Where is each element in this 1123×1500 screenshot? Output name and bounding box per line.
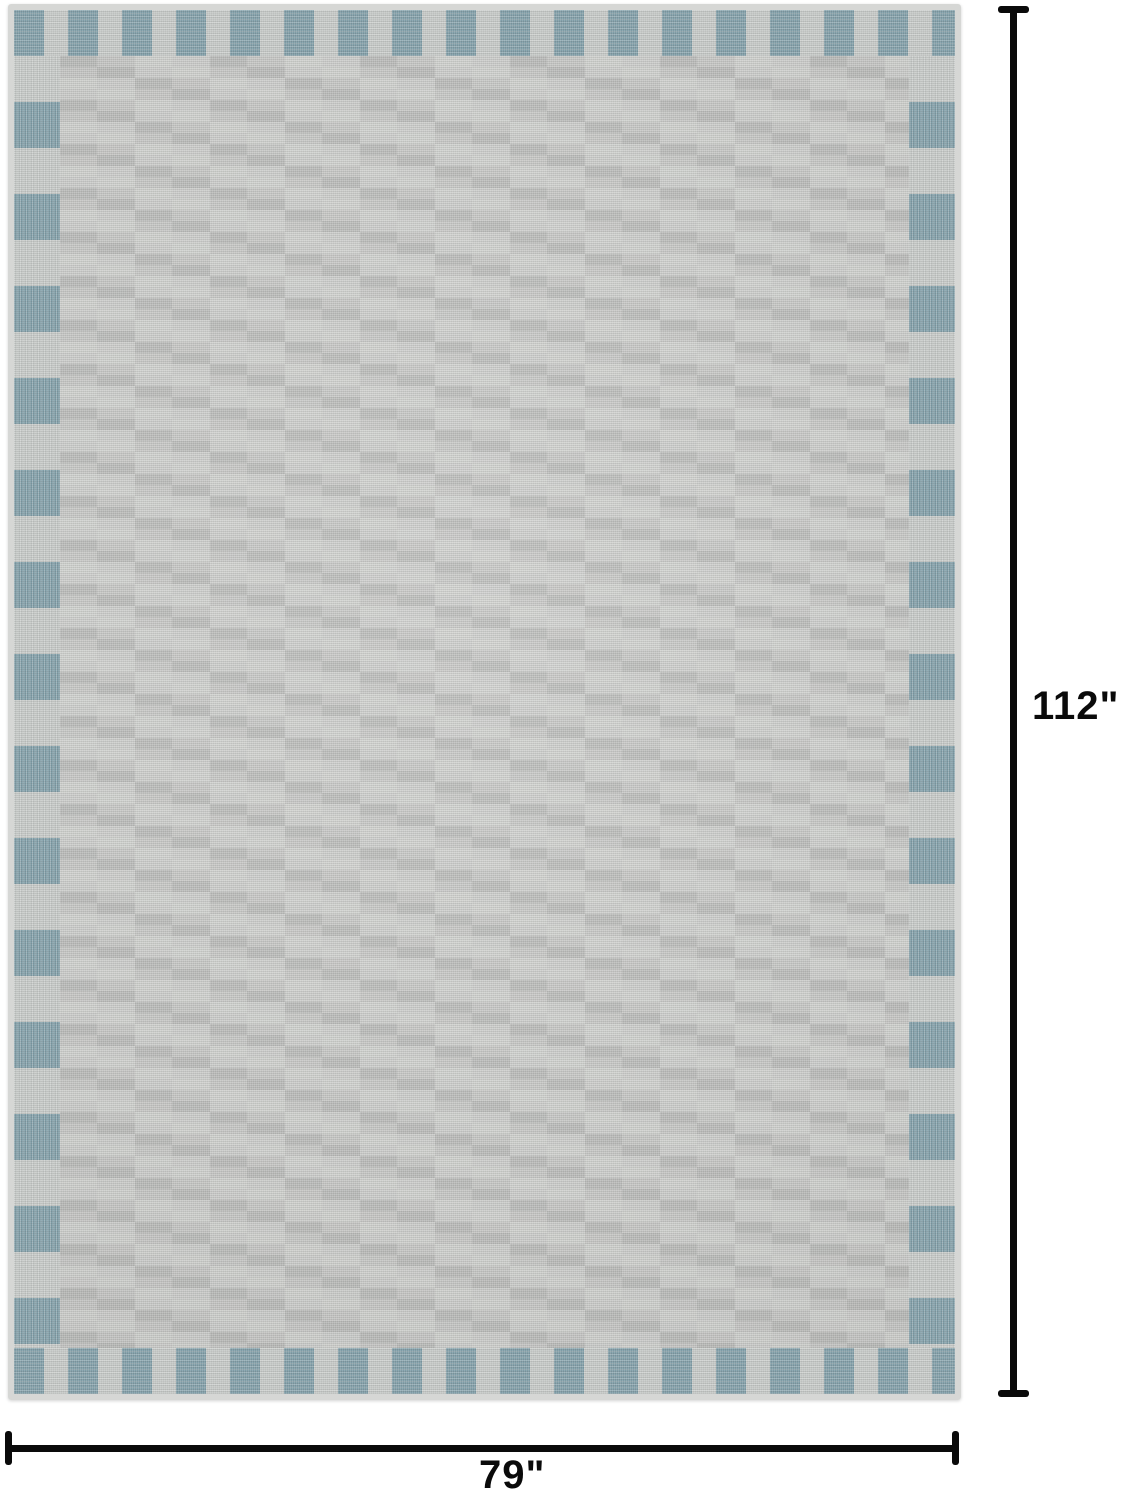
- rug-border-bottom: [14, 1348, 955, 1394]
- height-dimension-label: 112": [1032, 684, 1120, 729]
- product-dimension-image: 112" 79": [0, 0, 1123, 1500]
- width-dimension-cap-right: [952, 1431, 959, 1465]
- width-dimension-cap-left: [5, 1431, 12, 1465]
- height-dimension-cap-top: [998, 6, 1029, 13]
- rug-field: [60, 56, 909, 1348]
- height-dimension-cap-bottom: [998, 1390, 1029, 1397]
- height-dimension-line: [1010, 9, 1017, 1394]
- width-dimension-label: 79": [479, 1453, 545, 1498]
- width-dimension-line: [8, 1445, 956, 1452]
- rug-photo: [8, 4, 961, 1400]
- rug-border-top: [14, 10, 955, 56]
- rug-border-left: [14, 56, 60, 1348]
- rug-border-right: [909, 56, 955, 1348]
